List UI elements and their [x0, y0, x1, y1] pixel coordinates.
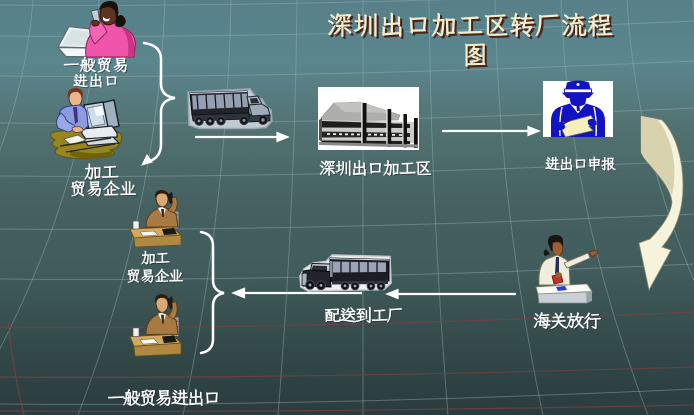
svg-text:深圳出口加工区: 深圳出口加工区 — [319, 156, 431, 179]
svg-text:海关放行: 海关放行 — [533, 309, 601, 333]
svg-text:进出口: 进出口 — [73, 72, 120, 91]
svg-text:一般贸易进出口: 一般贸易进出口 — [107, 386, 219, 410]
svg-text:加工: 加工 — [141, 249, 170, 268]
svg-text:贸易企业: 贸易企业 — [126, 267, 184, 286]
svg-text:深圳出口加工区转厂流程: 深圳出口加工区转厂流程 — [327, 8, 613, 42]
svg-text:配送到工厂: 配送到工厂 — [324, 303, 403, 326]
svg-text:贸易企业: 贸易企业 — [70, 177, 137, 200]
svg-text:进出口申报: 进出口申报 — [545, 155, 616, 174]
svg-text:图: 图 — [462, 38, 488, 72]
